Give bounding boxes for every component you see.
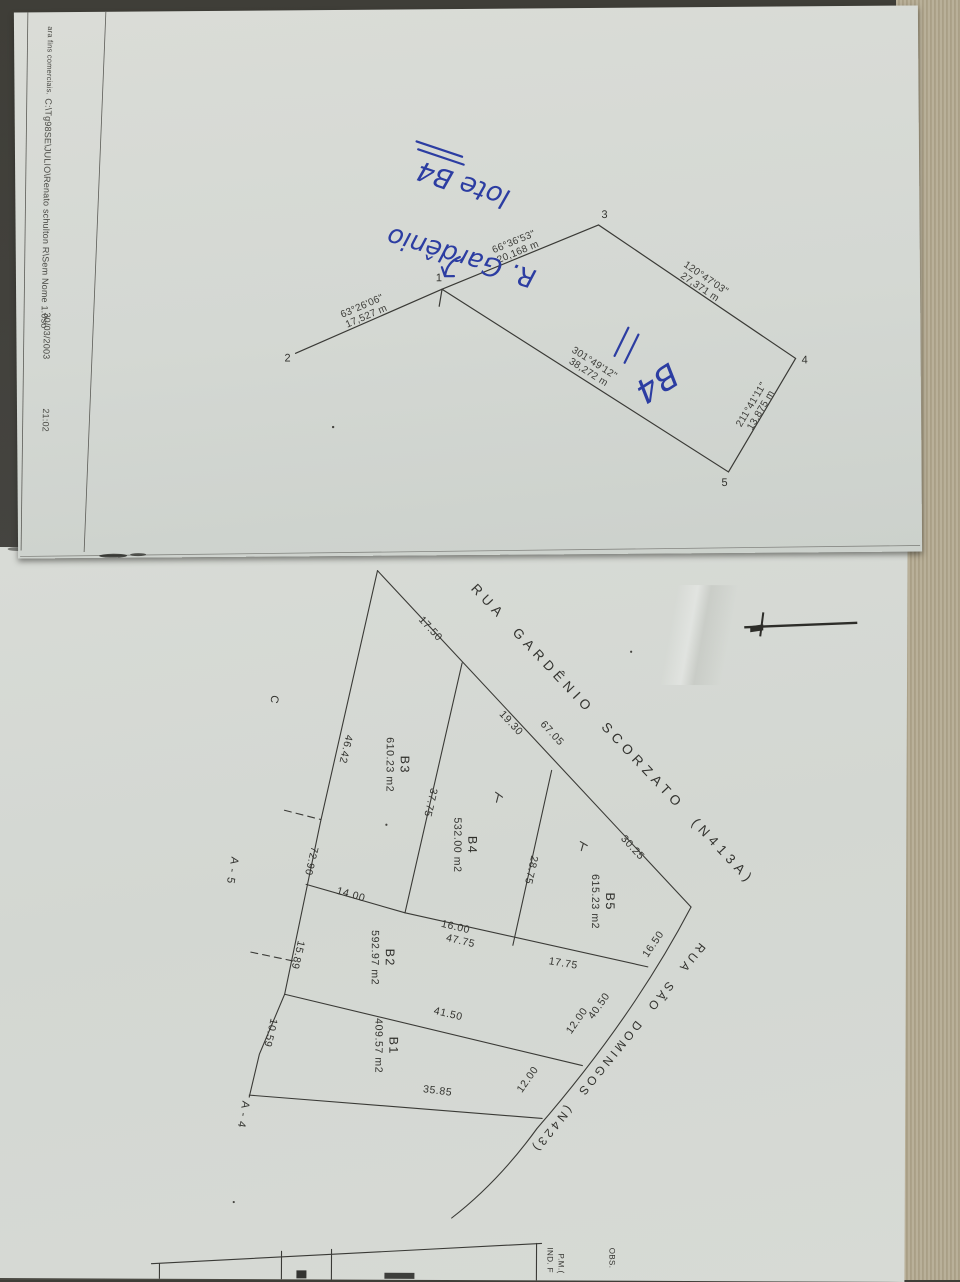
lot-b2-area: 592.97 m2 <box>369 930 381 985</box>
lot-b4-name: B4 <box>465 836 479 854</box>
lot-b4-area: 532.00 m2 <box>451 817 463 872</box>
margin-date: 30/03/2003 <box>41 312 52 359</box>
ink-blot <box>130 553 146 556</box>
handwritten-lote-b4: lote B4 <box>413 154 513 214</box>
title-block-dividers <box>159 1242 536 1281</box>
b1-south-line <box>249 1095 542 1118</box>
lot-b5-label: B5 615.23 m2 <box>589 874 617 929</box>
dim-street-16-50: 16.50 <box>640 929 666 960</box>
dim-b5-17-75: 17.75 <box>548 955 579 972</box>
dim-left-15-89: 15.89 <box>289 939 307 970</box>
vertex-1: 1 <box>436 272 442 284</box>
neighbor-label-c: C <box>267 694 280 705</box>
stray-dot <box>385 824 387 826</box>
dashed-tick-2 <box>251 952 295 961</box>
dim-street-12-00-a: 12.00 <box>564 1005 591 1036</box>
edge-4-5-label: 211°41'11" 13,875 m <box>734 380 778 434</box>
title-block: IND. F P.M.( OBS. <box>151 1242 616 1281</box>
title-block-top-line <box>151 1242 541 1266</box>
lot-b3-label: B3 610.23 m2 <box>384 737 412 792</box>
title-block-glyph <box>296 1270 306 1278</box>
handwritten-b4-mark: B4 <box>628 355 686 411</box>
stray-dot <box>630 651 632 653</box>
vertex-1-tick <box>439 289 442 306</box>
subdivision-plan: RUA GARDÊNIO SCORZATO (N413A) RUA SÃO DO… <box>0 547 908 1282</box>
dim-divider-28-75: 28.75 <box>522 854 540 885</box>
dim-left-72-90: 72.90 <box>302 845 320 876</box>
handwritten-lot-mark: B4 <box>628 355 686 411</box>
stray-dot <box>233 1201 235 1203</box>
divider-b2-b1 <box>284 994 582 1065</box>
neighbor-label-a5: A - 5 <box>224 856 241 885</box>
dashed-tick-1 <box>284 810 320 819</box>
dim-front-30-25: 30.25 <box>618 833 647 863</box>
ink-blot <box>99 554 127 558</box>
dim-b1-41-50: 41.50 <box>433 1005 464 1023</box>
lot-b4-label: B4 532.00 m2 <box>451 817 479 872</box>
north-arrow <box>744 612 857 636</box>
survey-drawing: ara fins comerciais. C:\Tg98SE\JULIO\Ren… <box>14 5 922 558</box>
dim-street-12-00-b: 12.00 <box>514 1064 541 1095</box>
title-block-ind: IND. F <box>545 1247 554 1273</box>
lot-b3-area: 610.23 m2 <box>384 737 396 792</box>
dim-divider-37-75: 37.75 <box>421 787 439 818</box>
handwritten-lot-note: lote B4 <box>404 141 517 214</box>
vertex-2: 2 <box>284 352 290 364</box>
lot-b3-name: B3 <box>398 756 412 774</box>
title-block-glyph <box>384 1273 414 1279</box>
handwritten-double-slash <box>614 328 638 363</box>
lot-b1-name: B1 <box>386 1037 400 1055</box>
lot-b2-label: B2 592.97 m2 <box>369 930 397 985</box>
title-block-obs: OBS. <box>607 1248 616 1269</box>
stray-dot <box>332 426 334 428</box>
vertex-3: 3 <box>601 209 607 221</box>
sheet-bottom-plan: RUA GARDÊNIO SCORZATO (N413A) RUA SÃO DO… <box>0 547 908 1282</box>
lot-b1-area: 409.57 m2 <box>372 1018 384 1073</box>
margin-time: 21:02 <box>41 408 51 432</box>
dim-b2-14-00: 14.00 <box>335 885 366 905</box>
lot-b5-area: 615.23 m2 <box>589 874 601 929</box>
lot-b2-name: B2 <box>383 949 397 967</box>
dim-b2-47-75: 47.75 <box>445 932 476 950</box>
dim-front-17-50: 17.50 <box>416 614 445 644</box>
street-label-gardenio: RUA GARDÊNIO SCORZATO (N413A) <box>468 581 758 888</box>
sheet-top-survey: ara fins comerciais. C:\Tg98SE\JULIO\Ren… <box>14 5 922 558</box>
dim-front-67-05: 67.05 <box>538 719 567 749</box>
dim-front-19-30: 19.30 <box>497 708 526 738</box>
survey-traverse-lines <box>295 223 797 475</box>
dim-left-10-59: 10.59 <box>261 1017 279 1048</box>
margin-line-right <box>80 12 110 552</box>
vertex-4: 4 <box>802 354 808 366</box>
dim-b1-35-85: 35.85 <box>422 1083 453 1099</box>
street-label-sao-domingos: RUA SÃO DOMINGOS (N423) <box>528 940 708 1156</box>
lot-b5-name: B5 <box>603 893 617 911</box>
neighbor-label-a4: A - 4 <box>235 1100 252 1129</box>
margin-file-path: C:\Tg98SE\JULIO\Renato schulton R\Sem No… <box>39 98 53 328</box>
edge-3-4-label: 120°47'03" 27,371 m <box>675 259 730 306</box>
margin-notice: ara fins comerciais. <box>45 26 55 95</box>
lot-b1-label: B1 409.57 m2 <box>372 1018 400 1073</box>
dim-street-40-50: 40.50 <box>586 991 613 1022</box>
title-block-pm: P.M.( <box>556 1253 565 1273</box>
edge-2-1-label: 63°26'06" 17,527 m <box>339 292 390 330</box>
survey-mark <box>580 842 587 851</box>
survey-mark <box>495 792 502 802</box>
margin-line-left <box>17 12 32 550</box>
vertex-5: 5 <box>721 477 727 489</box>
